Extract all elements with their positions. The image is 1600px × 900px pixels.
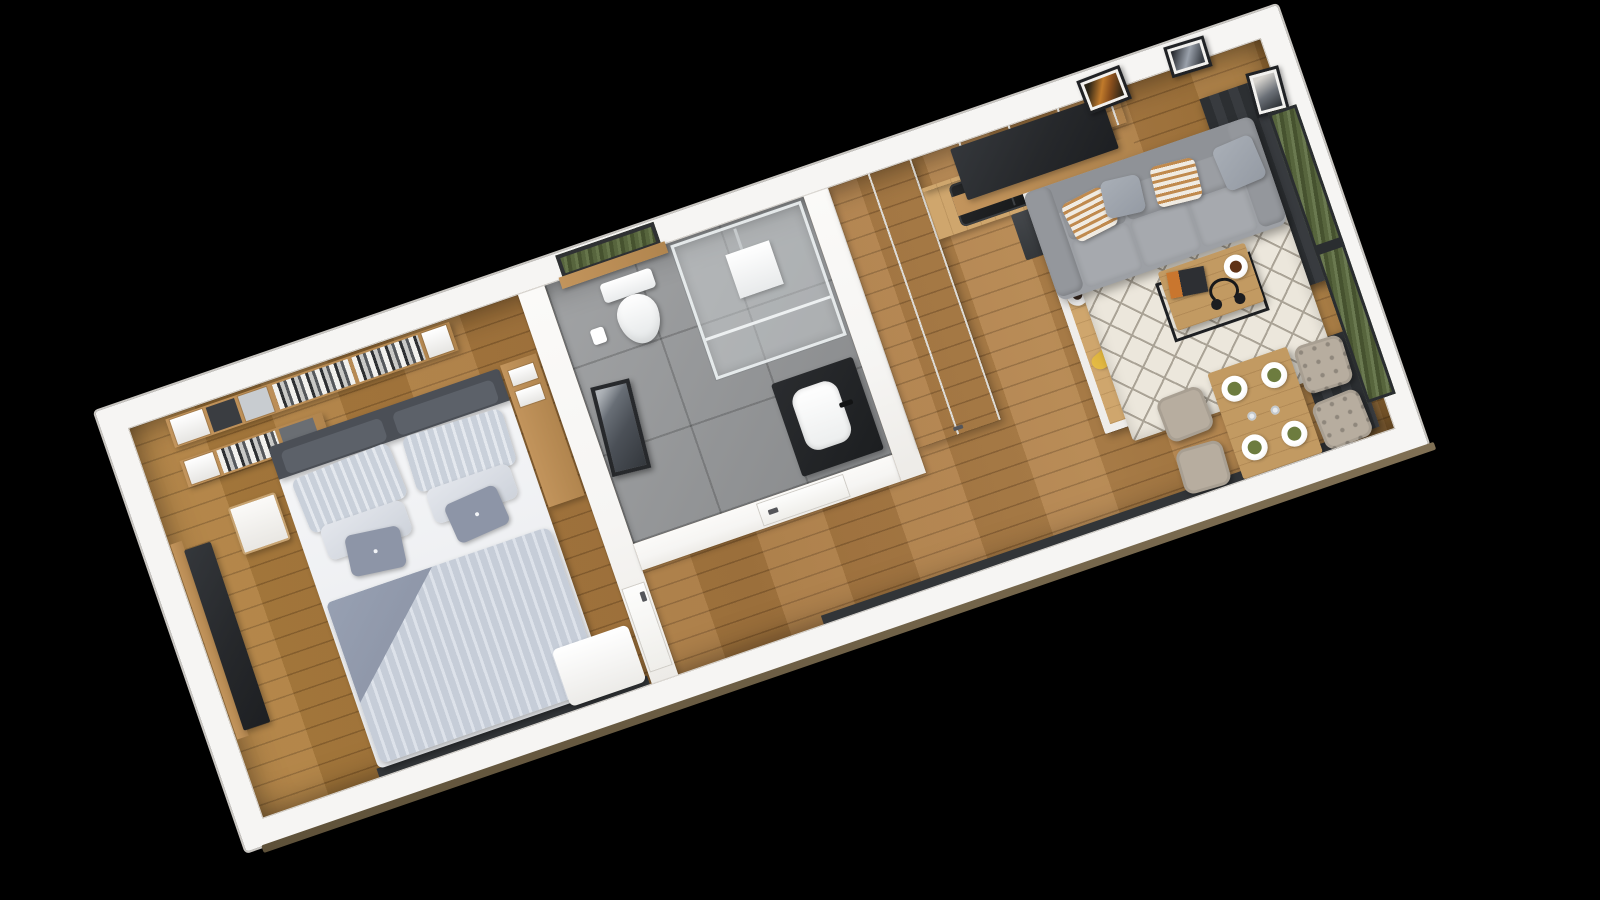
outer-walls bbox=[95, 5, 1428, 852]
apartment-floorplan bbox=[95, 5, 1428, 852]
glass-door-frame-bar bbox=[1313, 237, 1345, 256]
render-canvas bbox=[0, 0, 1600, 900]
